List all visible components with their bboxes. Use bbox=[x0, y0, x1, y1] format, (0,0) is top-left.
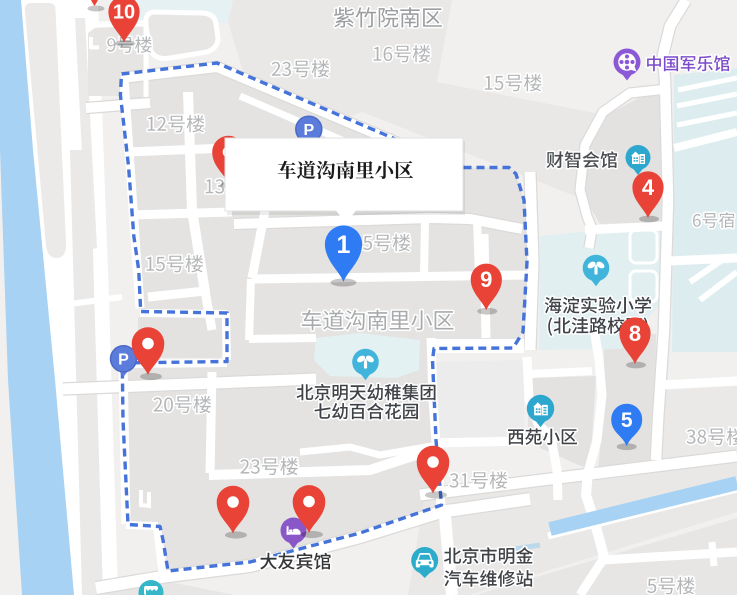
svg-text:P: P bbox=[118, 352, 129, 369]
svg-text:1: 1 bbox=[337, 231, 351, 259]
svg-text:10: 10 bbox=[113, 2, 135, 24]
svg-text:4: 4 bbox=[642, 175, 655, 200]
svg-text:5: 5 bbox=[621, 409, 633, 432]
svg-text:P: P bbox=[303, 122, 314, 139]
svg-text:8: 8 bbox=[629, 321, 641, 346]
svg-text:9: 9 bbox=[480, 267, 492, 292]
